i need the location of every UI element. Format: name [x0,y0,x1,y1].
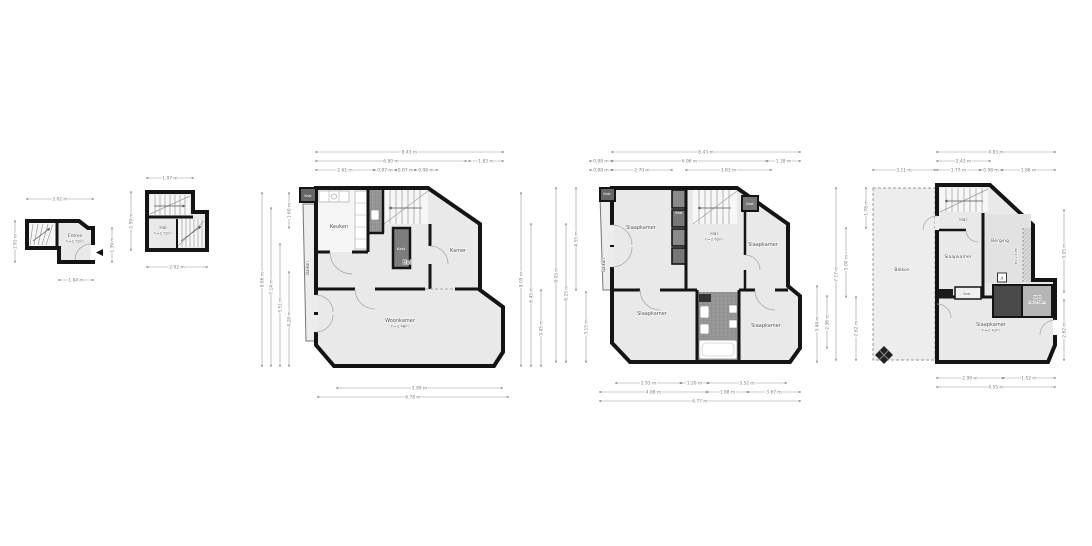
room-sublabel: h=2.62m [705,236,723,241]
dimension-label: 3.11 m [896,168,911,174]
room-label: Kast [603,192,611,196]
plan-entree [27,221,103,262]
dimension-label: 6.78 m [405,395,420,401]
plan-begane-grond: KeukenHalKamerWoonkamerh=2.48mKastKastBa… [300,188,503,366]
dimension-label: 1.60 m [287,203,293,218]
room-label: Balkon [305,261,310,275]
door-gap [1053,320,1057,335]
balkon-door-gap [314,315,318,332]
door-gap [91,245,96,260]
dimension-label: 2.43 m [956,159,971,165]
balkon-door-gap [610,247,614,267]
dimension-label: 8.43 m [698,150,713,156]
dimension-label: 3.02 m [52,197,67,203]
berging-low-headroom-hatch [1023,228,1031,282]
dimension-label: 1.39 m [110,237,116,252]
floorplan-sheet: KeukenHalKamerWoonkamerh=2.48mKastKastBa… [0,0,1092,546]
keuken-counter-top [319,191,349,202]
room-sublabel: h=2.52m [154,230,172,235]
keuken-counter-right [355,191,368,249]
badkamer-bidet [700,324,709,334]
room-label: Hal [403,260,411,266]
room-sublabel: h=1.50m [1028,299,1046,304]
dimension-label: 2.62 m [854,321,860,336]
dimension-label: 8.66 m [260,272,266,287]
dimension-label: 3.05 m [1062,243,1068,258]
room-label: Kast [675,211,683,215]
dimension-label: 3.52 m [739,381,754,387]
kast-column-box [672,229,686,246]
dimension-label: 1.86 m [1021,168,1036,174]
dimension-label: 3.15 m [584,319,590,334]
dimension-label: 0.98 m [418,168,433,174]
dimension-label: 0.98 m [593,168,608,174]
dimension-label: 1.91 m [13,234,19,249]
room-label: Kast [963,292,971,296]
dimension-label: 6.80 m [383,159,398,165]
dimension-label: 1.88 m [720,390,735,396]
entry-direction-icon [96,249,103,256]
dimension-label: 4.28 m [287,311,293,326]
room-label: Slaapkamer [748,242,779,248]
dimension-label: 4.88 m [646,390,661,396]
room-label: Balkon [894,267,909,273]
kast-column-box [672,248,686,264]
dimension-label: 4.55 m [988,385,1003,391]
wc-toilet [371,210,379,220]
room-label: Hal [959,217,967,223]
dimension-label: 0.87 m [398,168,413,174]
dimension-label: 5.51 m [278,297,284,312]
room-label: Keuken [330,224,348,230]
plan-tweede-verdieping: HalSlaapkamerBergingh=1.50mSlaapkamerh=2… [873,185,1057,364]
dimension-label: 6.45 m [529,287,535,302]
badkamer-cabinet [699,294,711,302]
dimension-label: 2.93 m [641,381,656,387]
dimension-label: 2.59 m [129,213,135,228]
dimension-label: 6.77 m [692,399,707,405]
dimension-label: 2.92 m [169,265,184,271]
dimension-label: 1.78 m [864,200,870,215]
dimension-label: 1.83 m [478,159,493,165]
dimension-label: 2.99 m [962,376,977,382]
dimension-label: 6.96 m [682,159,697,165]
dimension-label: 0.98 m [983,168,998,174]
balkon-door-gap [935,216,939,230]
room-label: Slaapkamer [637,311,668,317]
floorplan-drawing: KeukenHalKamerWoonkamerh=2.48mKastKastBa… [0,0,1092,546]
dimension-label: 1.20 m [687,381,702,387]
dimension-label: 3.83 m [721,168,736,174]
room-label: Entreeh=2.52m [66,233,84,243]
dimension-label: 3.00 m [844,255,850,270]
dimension-label: 4.83 m [988,150,1003,156]
room-sublabel: h=2.42m [982,327,1000,332]
room-sublabel: h=2.48m [391,323,409,328]
dimension-label: 0.97 m [377,168,392,174]
dimension-label: 3.45 m [539,320,545,335]
dimension-label: 1.84 m [68,278,83,284]
dimension-label: 5.99 m [412,386,427,392]
badkamer-toilet [700,306,709,318]
badkamer-sink [729,320,737,328]
dimension-label: 4.55 m [574,231,580,246]
dimension-label: 1.77 m [951,168,966,174]
dakterras-balkon [873,188,935,360]
dimension-label: 7.14 m [269,279,275,294]
dimension-label: 3.67 m [766,390,781,396]
room-label: Slaapkamer [751,323,782,329]
dimension-label: 8.05 m [554,267,560,282]
badkamer-sink [729,305,737,313]
dimension-label: 2.70 m [634,168,649,174]
kast-dark-room [993,285,1022,317]
room-label: Kast [304,194,312,198]
dimension-label: 2.62 m [1062,322,1068,337]
room-label: A [1001,276,1004,281]
dimension-label: 6.25 m [564,285,570,300]
dimension-label: 3.44 m [815,316,821,331]
room-sublabel: h=2.52m [66,238,84,243]
room-label: Slaapkamer [626,225,657,231]
dimension-label: 1.97 m [162,176,177,182]
room-label: Kast [397,246,406,251]
room-label: Kast [746,202,754,206]
dimension-label: 2.36 m [825,314,831,329]
counter-block [939,289,953,298]
dimension-label: 2.61 m [337,168,352,174]
room-label: h=1.50m [1014,247,1018,264]
dimension-label: 1.52 m [1021,376,1036,382]
balkon-door-gap [610,225,614,245]
room-label: Balkon [601,258,606,272]
room-label: Berging [991,238,1009,244]
plan-eerste-verdieping: SlaapkamerHalh=2.62mSlaapkamerSlaapkamer… [600,188,800,362]
dimension-label: 8.05 m [519,272,525,287]
kast-column-box [672,190,686,208]
room-label: Kamer [450,248,467,254]
balkon-door-gap [314,295,318,312]
dimension-label: 0.98 m [593,159,608,165]
dimension-label: 8.43 m [402,150,417,156]
dimension-label: 1.38 m [776,159,791,165]
room-label: Slaapkamer [944,254,971,260]
dimension-label: 7.17 m [834,266,840,281]
plan-trappenhuis [147,192,207,250]
